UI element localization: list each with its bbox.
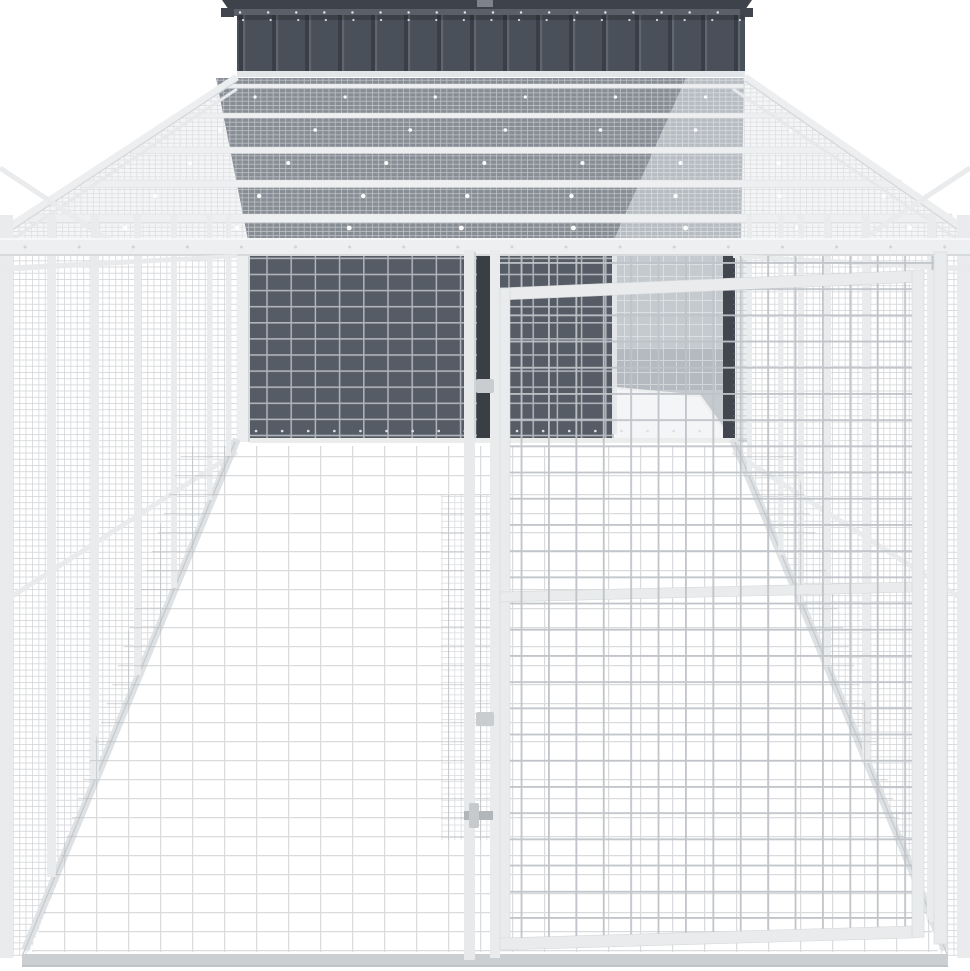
gate-mesh — [510, 282, 912, 938]
product-photo: Dog house with large wire mesh run — [0, 0, 970, 971]
gate-gap-slot — [477, 256, 490, 438]
wall-post — [91, 215, 99, 780]
dog-house-run-illustration: Dog house with large wire mesh run — [0, 0, 970, 971]
rafter — [182, 113, 799, 118]
dog-house — [221, 0, 753, 77]
rafter — [80, 180, 901, 188]
gate-left-stile — [500, 288, 510, 949]
house-post-left-edge — [248, 240, 250, 442]
gable-corrugation — [237, 15, 745, 72]
gate-right-stile — [912, 270, 924, 938]
wall-post — [957, 215, 970, 958]
rafter — [226, 84, 744, 88]
rafter — [131, 147, 850, 154]
hinge — [476, 712, 494, 726]
wall-post — [0, 215, 13, 958]
top-rail-shadow — [0, 254, 970, 256]
run-gate — [464, 250, 947, 960]
wall-post — [47, 215, 56, 877]
gate-post-edge — [474, 252, 476, 438]
gate-hinge-stile — [490, 250, 500, 958]
gate-frame-post-right — [934, 252, 947, 944]
rafter — [29, 214, 952, 223]
base-rail-edge — [22, 965, 948, 967]
gable-bottom-trim — [237, 71, 745, 77]
hinge — [476, 379, 494, 393]
top-rail-bar — [0, 238, 970, 256]
latch-handle — [469, 803, 479, 828]
top-rail-highlight — [0, 238, 970, 240]
roof-ridge-cap — [477, 0, 493, 7]
roof-eave-trim — [227, 9, 747, 16]
roof-eave-tab-left — [221, 8, 234, 17]
gate-post — [464, 250, 475, 960]
